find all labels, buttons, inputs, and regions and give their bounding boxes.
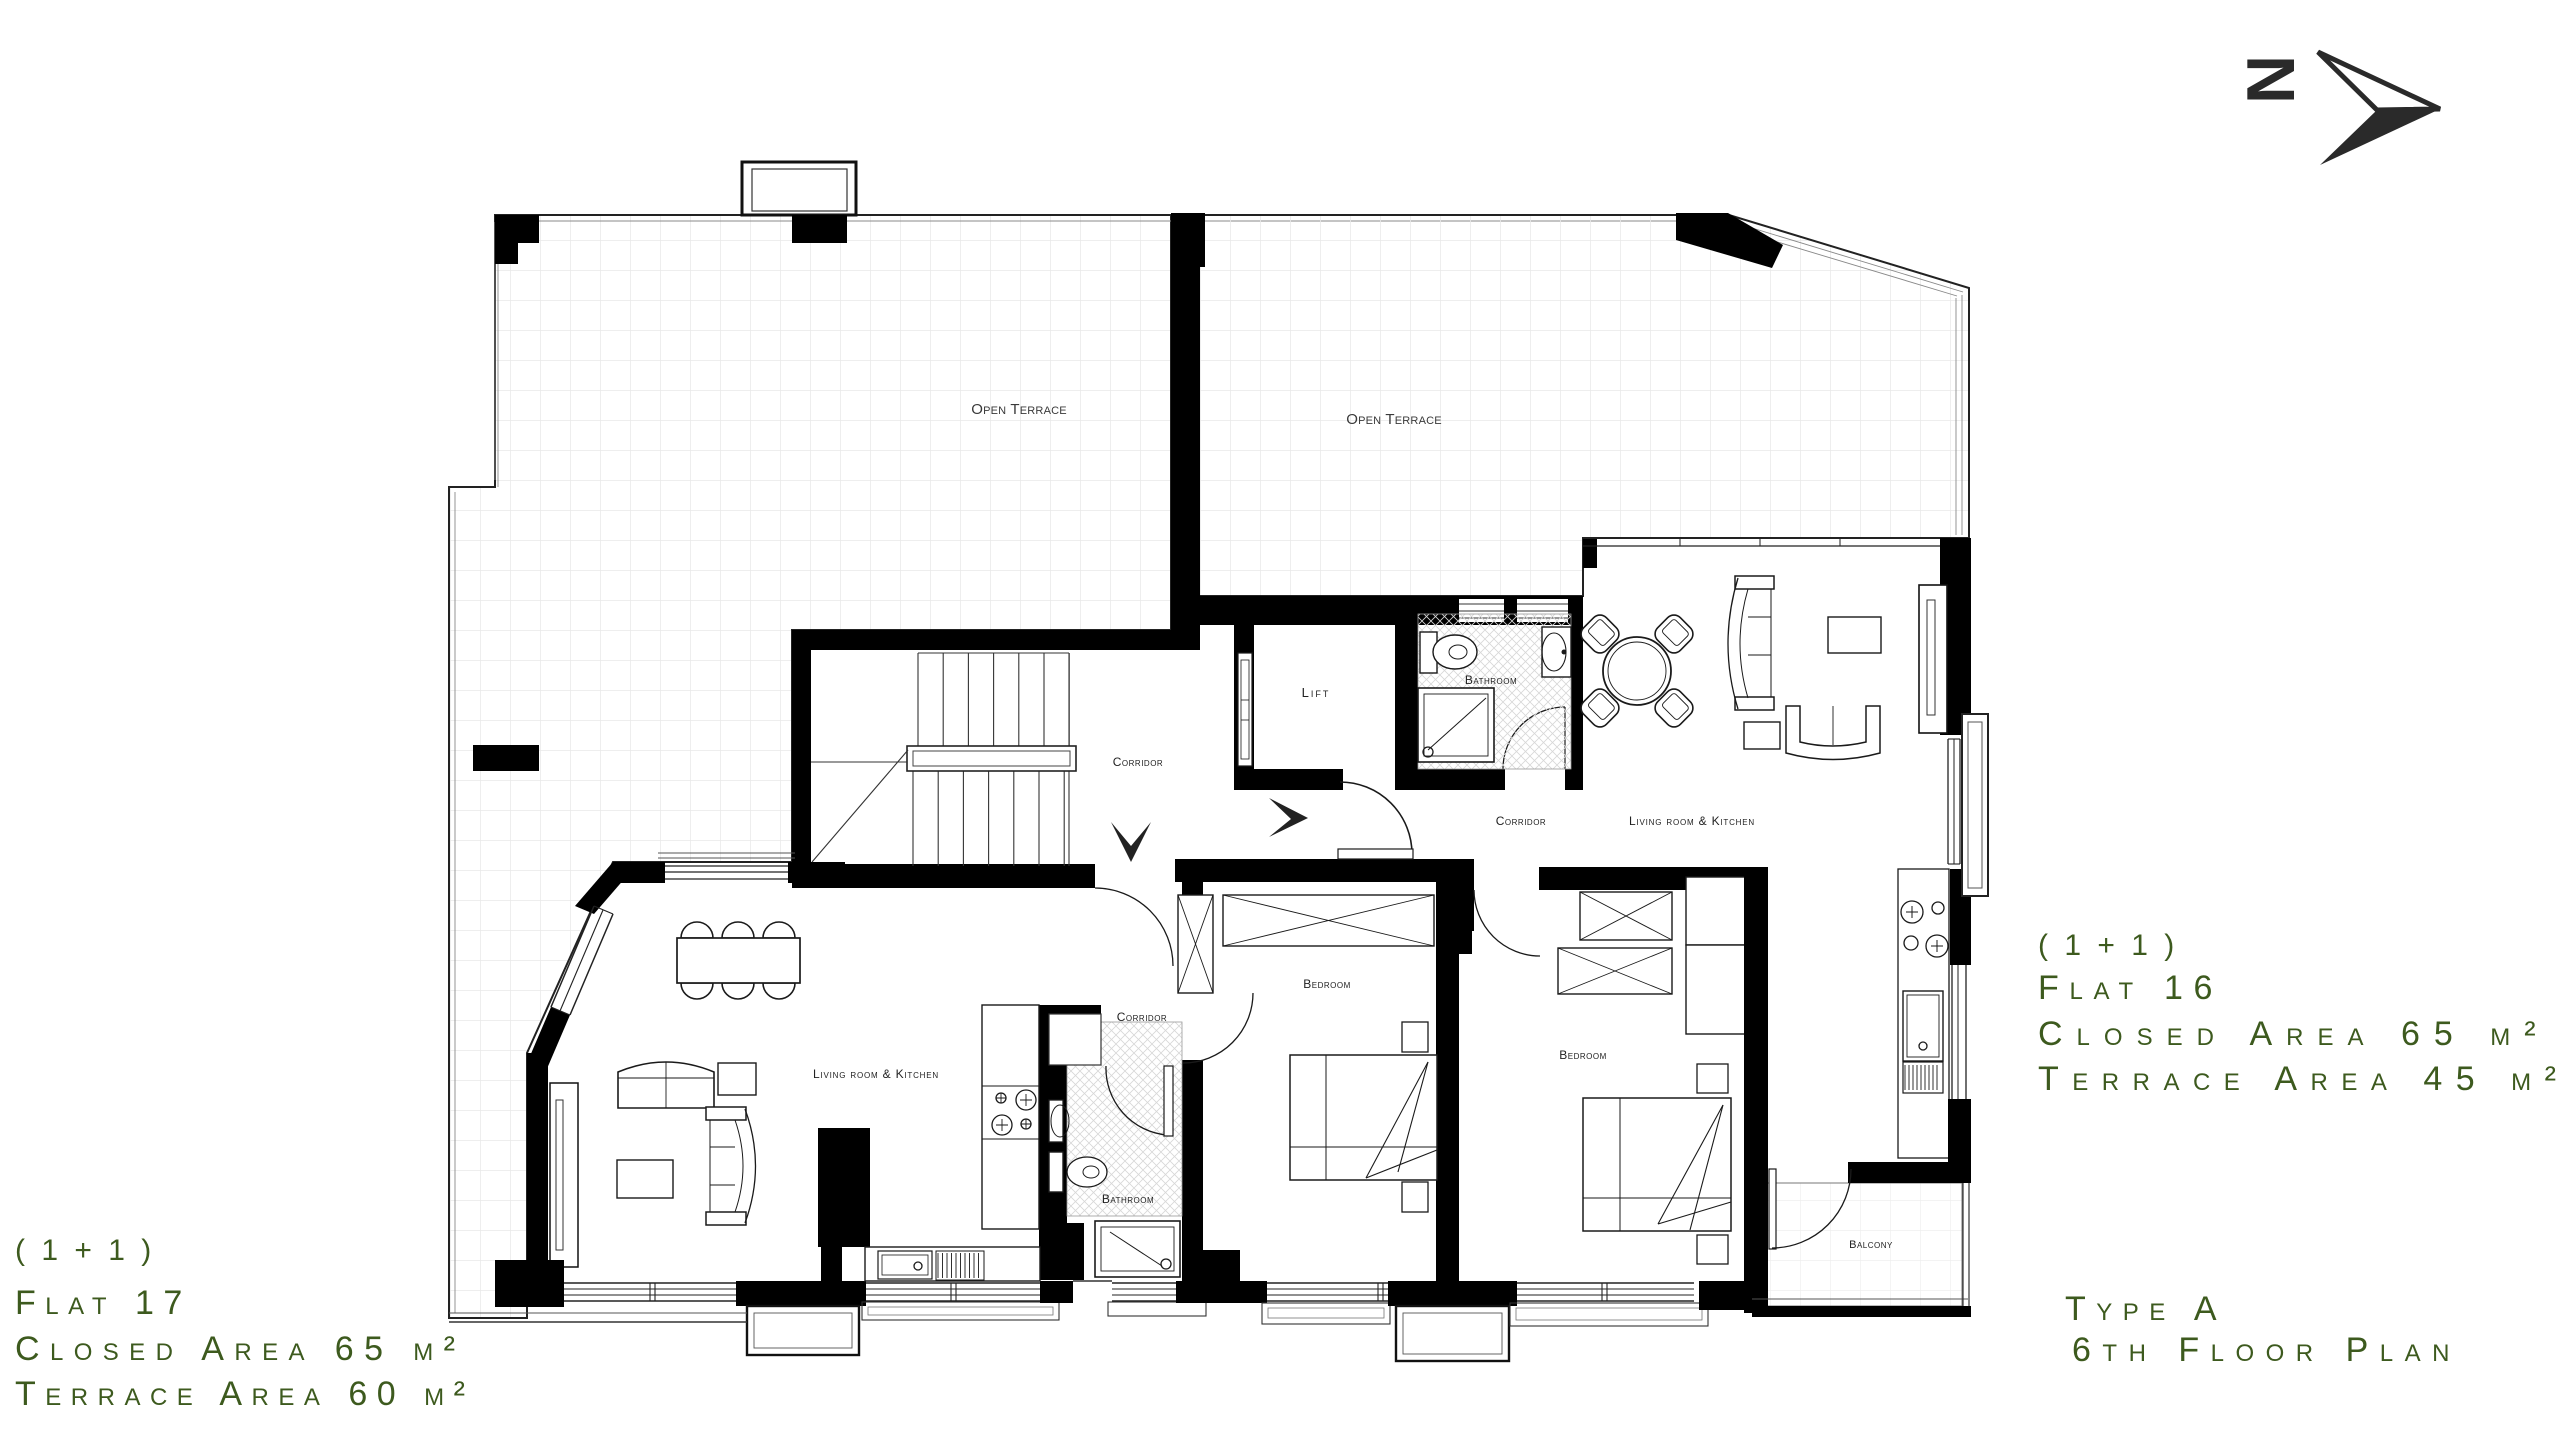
svg-text:Closed Area 65 m²: Closed Area 65 m² <box>15 1330 465 1368</box>
svg-text:Terrace Area 45 m²: Terrace Area 45 m² <box>2038 1060 2560 1098</box>
svg-text:Corridor: Corridor <box>1117 1010 1167 1024</box>
svg-text:Balcony: Balcony <box>1849 1239 1893 1251</box>
svg-text:Terrace Area 60 m²: Terrace Area 60 m² <box>15 1375 474 1413</box>
svg-text:Bathroom: Bathroom <box>1465 673 1517 687</box>
svg-text:( 1 + 1 ): ( 1 + 1 ) <box>2038 929 2178 962</box>
svg-text:Closed Area 65 m²: Closed Area 65 m² <box>2038 1015 2550 1053</box>
svg-text:( 1 + 1 ): ( 1 + 1 ) <box>15 1234 155 1267</box>
svg-text:Open Terrace: Open Terrace <box>1346 411 1442 428</box>
svg-text:Lift: Lift <box>1302 685 1331 700</box>
svg-text:Corridor: Corridor <box>1113 755 1163 769</box>
svg-text:Bedroom: Bedroom <box>1303 977 1351 991</box>
svg-text:Open Terrace: Open Terrace <box>971 401 1067 418</box>
svg-text:Flat 17: Flat 17 <box>15 1284 192 1322</box>
svg-text:6th Floor Plan: 6th Floor Plan <box>2072 1331 2461 1369</box>
svg-text:Type A: Type A <box>2065 1290 2227 1328</box>
svg-text:Living room & Kitchen: Living room & Kitchen <box>813 1067 939 1081</box>
svg-text:Corridor: Corridor <box>1496 814 1546 828</box>
svg-text:N: N <box>2233 55 2309 104</box>
svg-text:Bathroom: Bathroom <box>1102 1192 1154 1206</box>
svg-text:Living room & Kitchen: Living room & Kitchen <box>1629 814 1755 828</box>
svg-text:Flat 16: Flat 16 <box>2038 969 2223 1007</box>
svg-text:Bedroom: Bedroom <box>1559 1048 1607 1062</box>
